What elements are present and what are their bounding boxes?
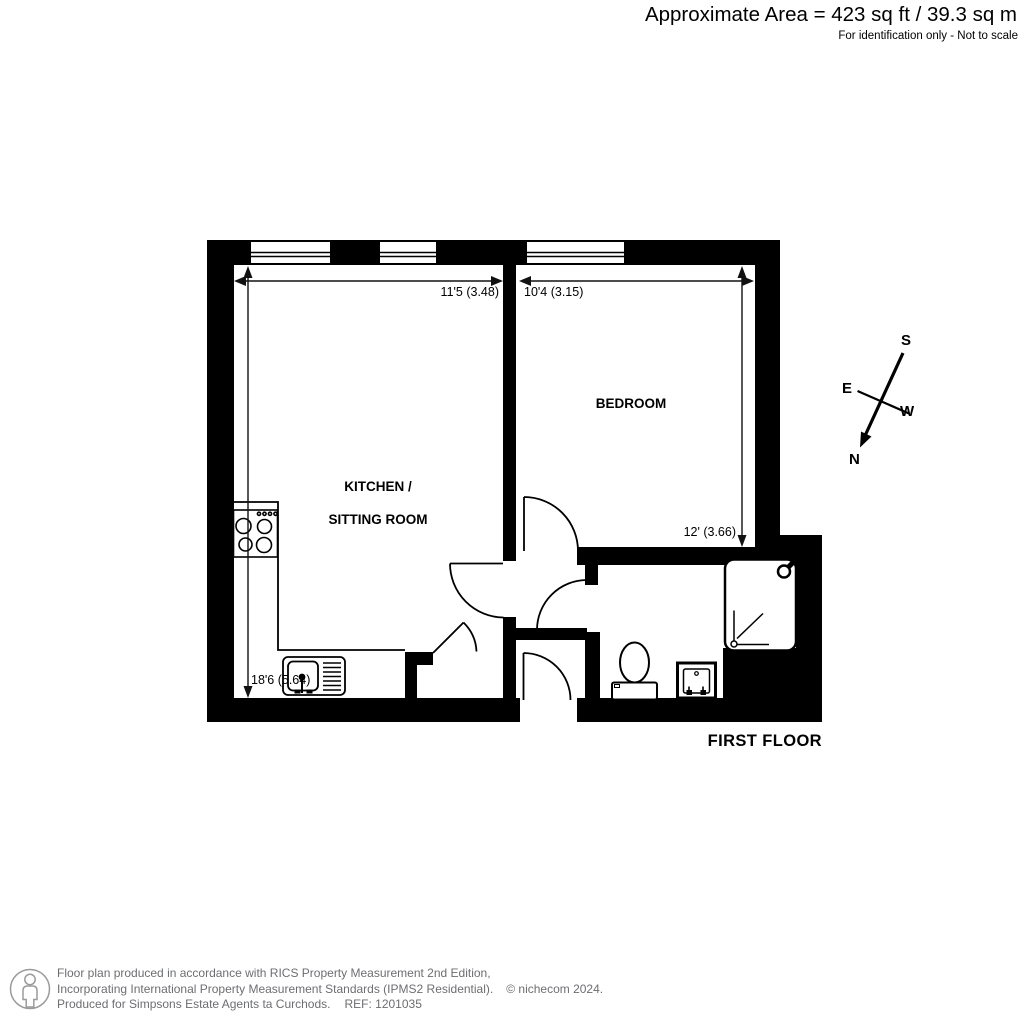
person-logo-icon xyxy=(11,970,50,1009)
footer-copyright: © nichecom 2024. xyxy=(506,982,603,996)
footer-disclaimer: Floor plan produced in accordance with R… xyxy=(57,966,603,1013)
bedroom-depth-dimension: 12' (3.66) xyxy=(656,525,736,539)
bedroom-width-dimension: 10'4 (3.15) xyxy=(524,285,583,299)
window-icon xyxy=(527,242,624,263)
footer-line3: Produced for Simpsons Estate Agents ta C… xyxy=(57,997,330,1011)
kitchen-sitting-room-label: KITCHEN / SITTING ROOM xyxy=(298,462,458,545)
kitchen-label-line1: KITCHEN / xyxy=(298,479,458,496)
floorplan-drawing xyxy=(0,0,1024,1020)
compass-icon xyxy=(858,353,910,448)
identification-note: For identification only - Not to scale xyxy=(838,30,1018,42)
hob-icon xyxy=(234,510,278,557)
approximate-area-title: Approximate Area = 423 sq ft / 39.3 sq m xyxy=(645,3,1017,27)
compass-east-label: E xyxy=(842,380,852,397)
compass-west-label: W xyxy=(900,403,914,420)
compass-north-label: N xyxy=(849,451,860,468)
footer-ref: REF: 1201035 xyxy=(344,997,421,1011)
floorplan-page: Approximate Area = 423 sq ft / 39.3 sq m… xyxy=(0,0,1024,1020)
basin-icon xyxy=(678,663,716,698)
kitchen-width-dimension: 11'5 (3.48) xyxy=(389,285,499,299)
shower-icon xyxy=(725,560,796,651)
kitchen-label-line2: SITTING ROOM xyxy=(298,512,458,529)
footer-line2: Incorporating International Property Mea… xyxy=(57,982,493,996)
kitchen-depth-dimension: 18'6 (5.64) xyxy=(251,673,310,687)
footer-line1: Floor plan produced in accordance with R… xyxy=(57,966,603,982)
compass-south-label: S xyxy=(901,332,911,349)
toilet-icon xyxy=(612,643,657,700)
window-icon xyxy=(251,242,330,263)
window-icon xyxy=(380,242,436,263)
first-floor-label: FIRST FLOOR xyxy=(650,732,822,751)
bedroom-label: BEDROOM xyxy=(551,396,711,413)
